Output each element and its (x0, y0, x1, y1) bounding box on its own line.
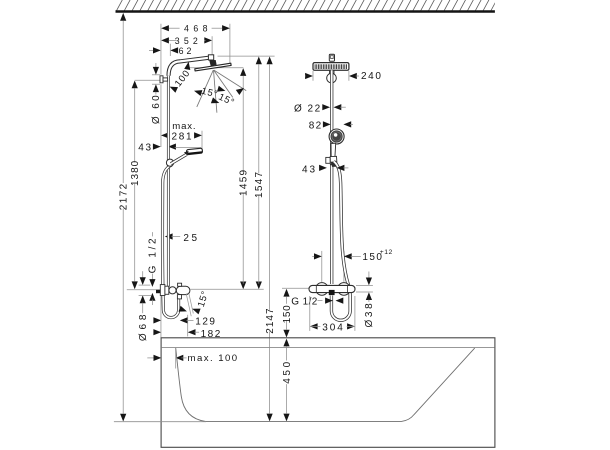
svg-text:Ø38: Ø38 (364, 301, 375, 328)
svg-text:1547: 1547 (254, 171, 265, 198)
svg-text:G 1/2: G 1/2 (148, 236, 159, 273)
svg-text:Ø68: Ø68 (138, 311, 149, 341)
svg-text:304: 304 (322, 322, 344, 333)
svg-text:62: 62 (179, 46, 195, 56)
svg-text:468: 468 (184, 24, 212, 34)
svg-text:43: 43 (138, 143, 152, 154)
svg-text:+12: +12 (380, 249, 393, 256)
svg-text:43: 43 (302, 165, 317, 176)
svg-text:1459: 1459 (239, 169, 250, 196)
svg-text:G 1/2: G 1/2 (291, 297, 317, 308)
svg-text:max. 100: max. 100 (188, 353, 239, 364)
svg-text:25: 25 (183, 233, 199, 244)
svg-text:281: 281 (172, 132, 194, 143)
svg-text:2172: 2172 (119, 182, 130, 210)
svg-text:352: 352 (175, 36, 202, 46)
svg-text:Ø 22: Ø 22 (294, 104, 322, 115)
svg-text:450: 450 (282, 359, 293, 384)
svg-text:max.: max. (172, 121, 196, 132)
svg-text:129: 129 (195, 317, 216, 328)
svg-text:240: 240 (361, 71, 383, 82)
svg-text:2147: 2147 (265, 307, 276, 333)
svg-text:Ø 60: Ø 60 (151, 93, 162, 124)
svg-text:1380: 1380 (130, 160, 141, 186)
svg-text:82: 82 (309, 120, 323, 131)
